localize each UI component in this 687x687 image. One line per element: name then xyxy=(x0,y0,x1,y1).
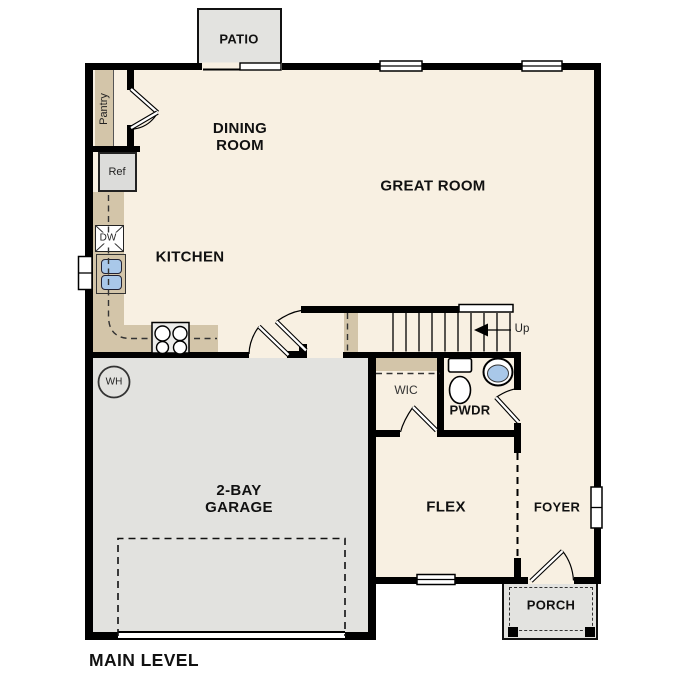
room-label-dining-room: DINING ROOM xyxy=(194,121,286,155)
room-label-great-room: GREAT ROOM xyxy=(380,178,485,195)
up-arrow-icon xyxy=(474,324,511,337)
room-label-garage: 2-BAY GARAGE xyxy=(189,483,289,517)
fixture-label-dw: DW xyxy=(99,233,118,244)
stairs xyxy=(393,305,513,352)
sliding-door xyxy=(202,63,282,72)
fixture-label-ref: Ref xyxy=(108,166,125,178)
room-label-porch: PORCH xyxy=(527,598,575,613)
room-label-patio: PATIO xyxy=(219,32,258,47)
room-label-powder: PWDR xyxy=(450,403,491,418)
room-label-wic: WIC xyxy=(394,383,417,397)
counter-edge-dash xyxy=(109,195,218,339)
stair-railing xyxy=(459,305,513,313)
floor-plan: PATIO Pantry DINING ROOM GREAT ROOM Ref … xyxy=(0,0,687,687)
room-label-kitchen: KITCHEN xyxy=(156,249,225,266)
room-label-foyer: FOYER xyxy=(534,500,580,515)
room-label-pantry: Pantry xyxy=(98,93,110,125)
room-label-flex: FLEX xyxy=(426,499,466,516)
toilet-icon xyxy=(449,359,472,404)
garage-door-dash xyxy=(118,539,345,637)
sink-oval-icon xyxy=(484,359,513,386)
stairs-up-label: Up xyxy=(515,323,530,335)
stove-icon xyxy=(152,323,189,355)
fixture-label-wh: WH xyxy=(106,377,123,388)
page-title: MAIN LEVEL xyxy=(89,650,199,671)
